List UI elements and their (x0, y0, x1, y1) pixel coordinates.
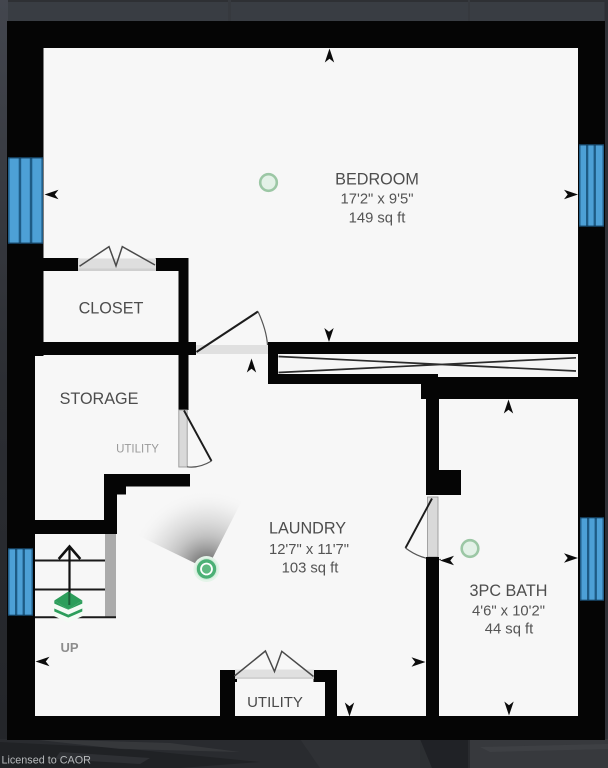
svg-text:4'6" x 10'2": 4'6" x 10'2" (472, 604, 545, 620)
svg-text:UP: UP (60, 640, 78, 655)
svg-text:CLOSET: CLOSET (79, 300, 144, 318)
svg-text:BEDROOM: BEDROOM (335, 171, 419, 189)
svg-text:Licensed to CAOR: Licensed to CAOR (2, 755, 92, 767)
svg-text:UTILITY: UTILITY (116, 444, 159, 456)
svg-text:LAUNDRY: LAUNDRY (269, 520, 346, 538)
svg-text:149 sq ft: 149 sq ft (349, 211, 406, 227)
svg-text:UTILITY: UTILITY (247, 694, 303, 711)
svg-text:17'2" x 9'5": 17'2" x 9'5" (341, 192, 414, 208)
svg-text:44 sq ft: 44 sq ft (485, 622, 534, 638)
svg-text:3PC BATH: 3PC BATH (470, 582, 548, 600)
svg-text:STORAGE: STORAGE (60, 390, 139, 408)
svg-text:103 sq ft: 103 sq ft (282, 561, 339, 577)
svg-text:12'7" x 11'7": 12'7" x 11'7" (269, 542, 349, 558)
